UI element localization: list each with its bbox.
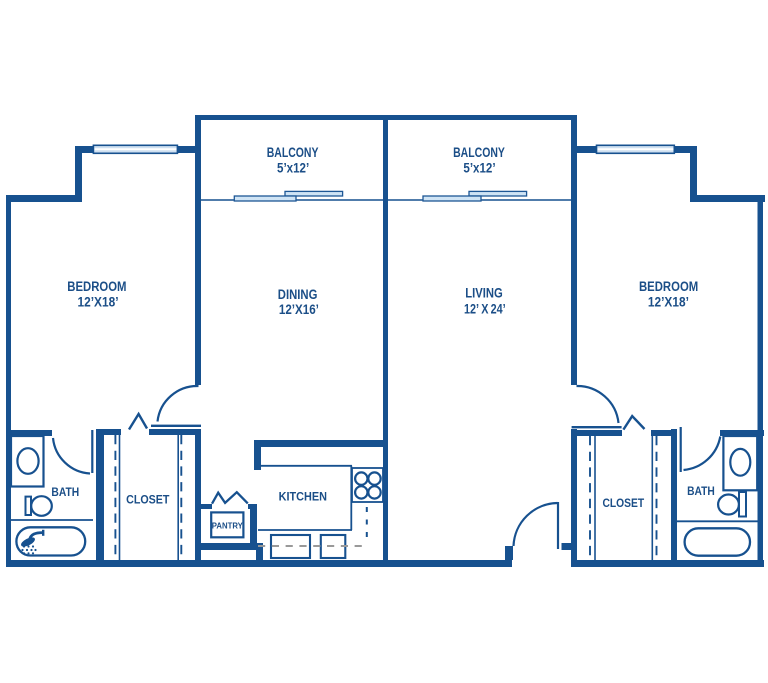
svg-text:PANTRY: PANTRY	[212, 522, 244, 531]
svg-text:BALCONY: BALCONY	[267, 145, 319, 160]
svg-text:12’X18’: 12’X18’	[78, 295, 119, 310]
svg-text:12’X16’: 12’X16’	[279, 302, 319, 317]
svg-text:12’ X 24’: 12’ X 24’	[464, 302, 506, 317]
svg-text:12’X18’: 12’X18’	[648, 295, 689, 310]
svg-text:BATH: BATH	[687, 484, 715, 498]
svg-text:DINING: DINING	[278, 287, 318, 302]
svg-text:BALCONY: BALCONY	[453, 145, 505, 160]
svg-text:LIVING: LIVING	[465, 285, 503, 300]
svg-text:CLOSET: CLOSET	[126, 493, 170, 507]
svg-text:CLOSET: CLOSET	[602, 496, 644, 510]
svg-text:BEDROOM: BEDROOM	[67, 279, 126, 294]
svg-text:BATH: BATH	[51, 485, 79, 499]
svg-text:KITCHEN: KITCHEN	[279, 490, 327, 504]
svg-text:5’x12’: 5’x12’	[277, 160, 309, 175]
svg-text:BEDROOM: BEDROOM	[639, 279, 698, 294]
svg-text:5’x12’: 5’x12’	[463, 160, 495, 175]
